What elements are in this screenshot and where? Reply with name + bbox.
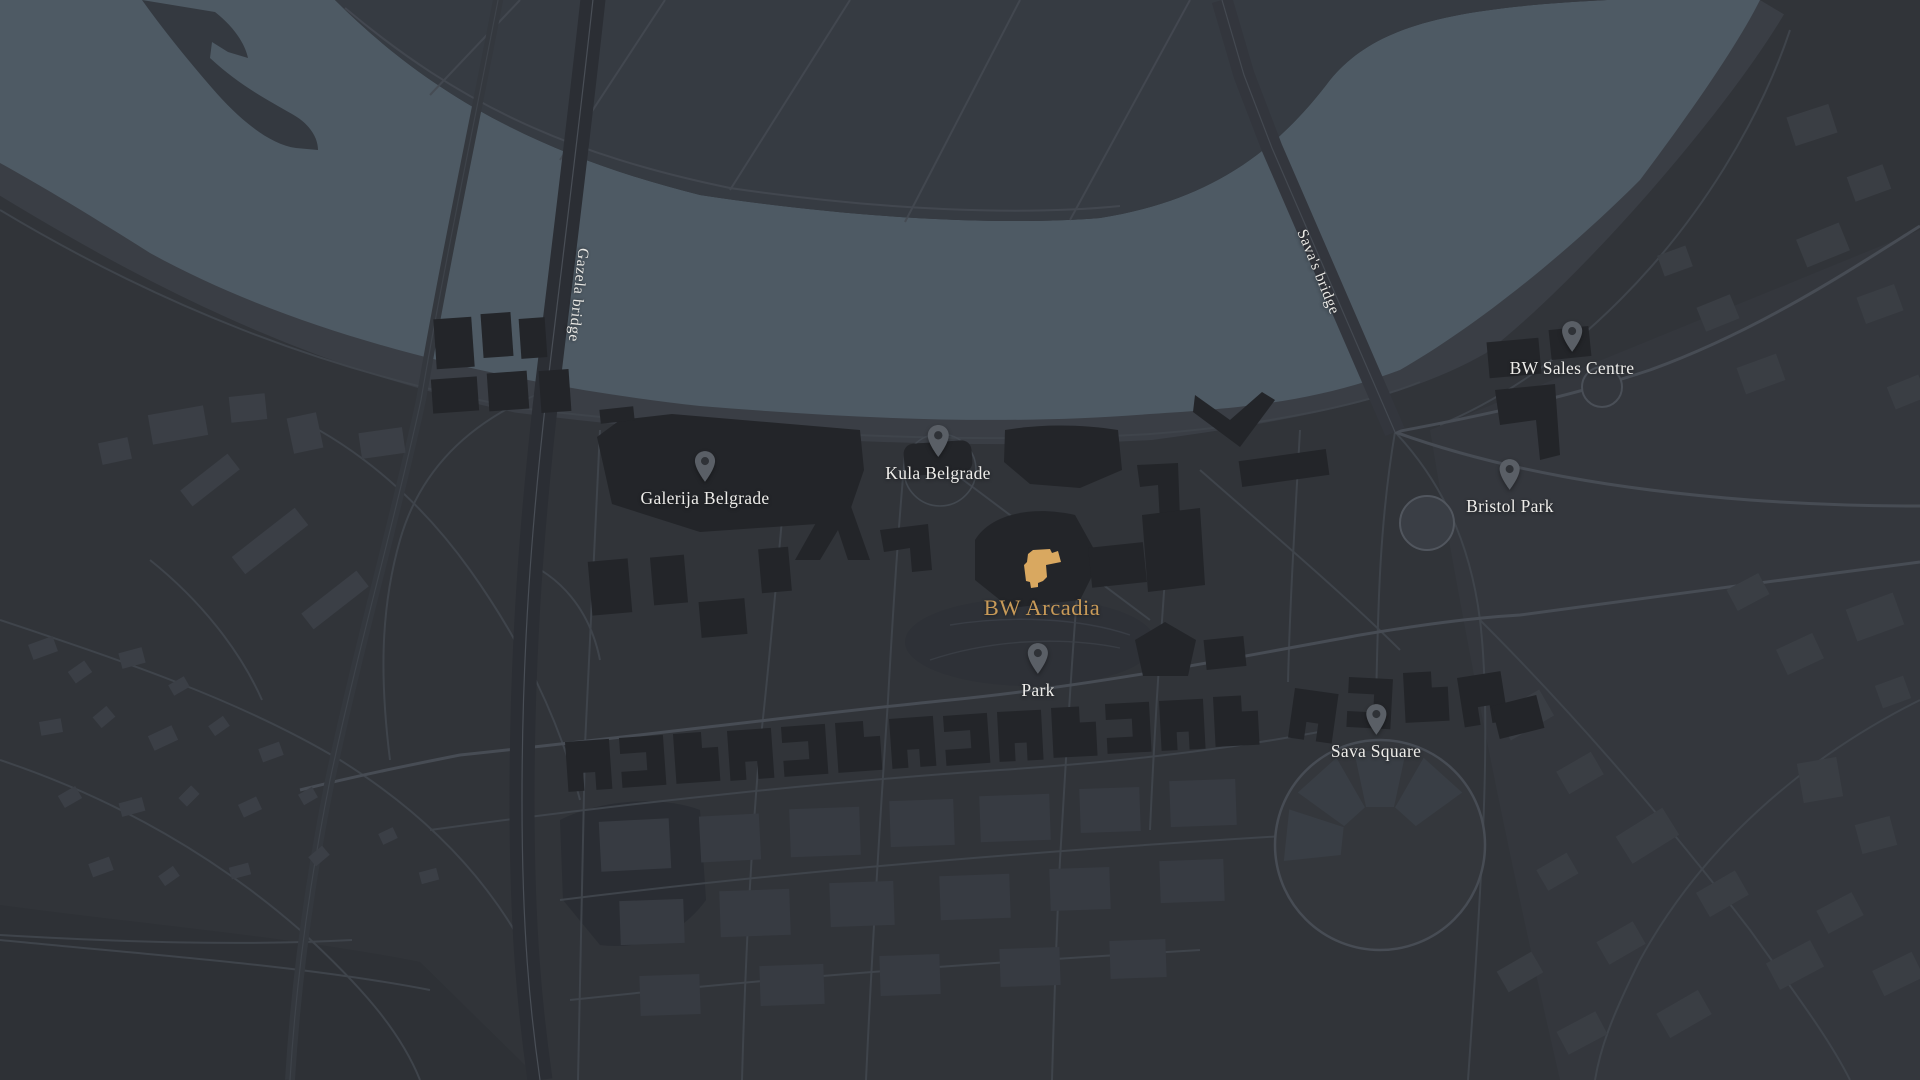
poi-label: BW Sales Centre: [1510, 360, 1635, 378]
map-marker-bristol-park[interactable]: Bristol Park: [1466, 458, 1554, 516]
location-pin-icon[interactable]: [926, 424, 950, 458]
map-marker-galerija-belgrade[interactable]: Galerija Belgrade: [641, 450, 770, 508]
map-marker-park[interactable]: Park: [1021, 642, 1054, 700]
map-canvas: Galerija Belgrade Kula Belgrade BW Sales…: [0, 0, 1920, 1080]
location-pin-icon[interactable]: [694, 450, 717, 483]
poi-label: Park: [1021, 682, 1054, 700]
location-pin-icon[interactable]: [1498, 458, 1521, 491]
poi-label: Kula Belgrade: [885, 465, 990, 483]
map-marker-kula-belgrade[interactable]: Kula Belgrade: [885, 424, 990, 483]
poi-label: Galerija Belgrade: [641, 490, 770, 508]
map-illustration: [0, 0, 1920, 1080]
map-marker-bw-sales-centre[interactable]: BW Sales Centre: [1510, 320, 1635, 378]
poi-label: Bristol Park: [1466, 498, 1554, 516]
location-pin-icon[interactable]: [1364, 703, 1387, 736]
poi-label: Sava Square: [1331, 743, 1421, 761]
location-pin-icon[interactable]: [1027, 642, 1050, 675]
map-marker-sava-square[interactable]: Sava Square: [1331, 703, 1421, 761]
bw-arcadia-label[interactable]: BW Arcadia: [984, 597, 1100, 620]
location-pin-icon[interactable]: [1561, 320, 1584, 353]
